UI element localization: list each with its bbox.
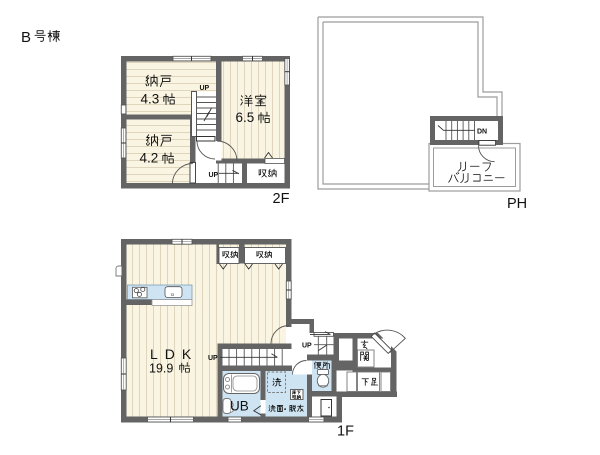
svg-text:2F: 2F — [273, 191, 290, 207]
svg-text:UP: UP — [209, 172, 219, 179]
svg-text:6.5: 6.5 — [236, 110, 255, 125]
svg-text:4.3: 4.3 — [141, 92, 160, 107]
svg-text:LDK: LDK — [150, 346, 198, 362]
svg-text:UP: UP — [208, 355, 218, 362]
svg-text:UB: UB — [230, 399, 249, 414]
svg-text:PH: PH — [507, 196, 527, 212]
svg-text:19.9: 19.9 — [149, 362, 173, 376]
svg-text:B: B — [21, 29, 31, 46]
svg-text:UP: UP — [200, 85, 210, 92]
svg-text:DN: DN — [477, 128, 487, 135]
svg-text:UP: UP — [302, 342, 312, 349]
svg-text:1F: 1F — [337, 424, 354, 440]
svg-text:4.2: 4.2 — [140, 151, 159, 166]
